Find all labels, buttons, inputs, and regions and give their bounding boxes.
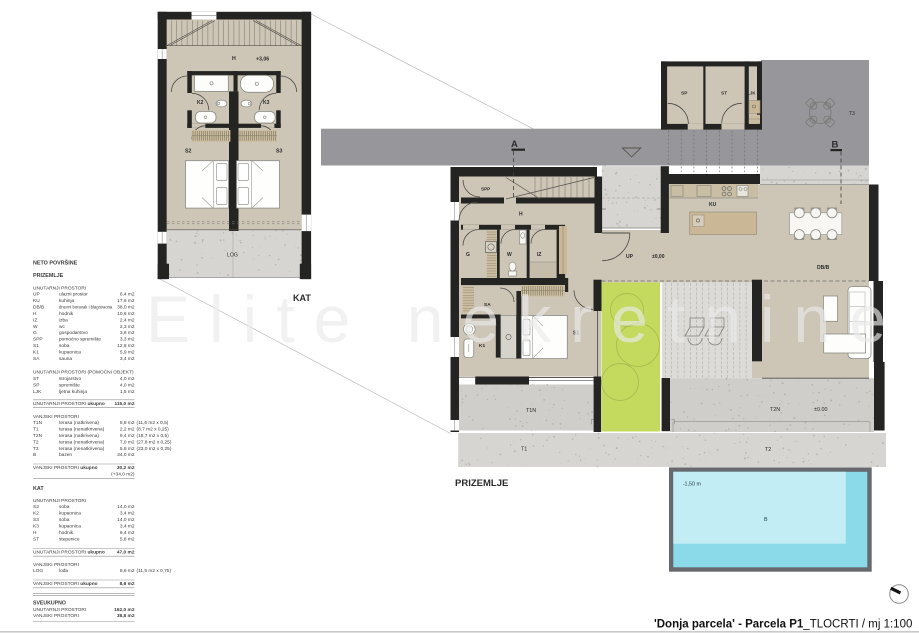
svg-text:T2: T2 <box>33 439 39 445</box>
svg-text:T1: T1 <box>521 447 527 453</box>
svg-text:UNUTARNJI PROSTORI: UNUTARNJI PROSTORI <box>33 607 86 613</box>
svg-text:ST: ST <box>33 376 39 382</box>
svg-text:2,2 m2: 2,2 m2 <box>120 427 135 433</box>
svg-text:(+34,0 m2): (+34,0 m2) <box>111 471 135 477</box>
svg-text:+3,06: +3,06 <box>256 57 269 63</box>
svg-text:SP: SP <box>33 382 39 388</box>
svg-text:38,8 m2: 38,8 m2 <box>117 613 135 619</box>
svg-text:T1N: T1N <box>33 420 43 426</box>
svg-text:terasa (nenatkrivena): terasa (nenatkrivena) <box>59 439 105 445</box>
svg-text:10,6 m2: 10,6 m2 <box>117 311 135 317</box>
svg-text:ST: ST <box>33 536 39 542</box>
svg-text:34,0 m2: 34,0 m2 <box>117 452 135 458</box>
svg-text:SVEUKUPNO: SVEUKUPNO <box>33 601 66 607</box>
svg-text:UNUTARNJI PROSTORI: UNUTARNJI PROSTORI <box>33 498 86 504</box>
svg-text:K2: K2 <box>197 100 204 106</box>
svg-text:UNUTARNJI PROSTORI ukupno: UNUTARNJI PROSTORI ukupno <box>33 549 105 555</box>
svg-text:VANJSKI PROSTORI: VANJSKI PROSTORI <box>33 414 79 420</box>
svg-text:162,0 m2: 162,0 m2 <box>114 607 135 613</box>
svg-text:T2: T2 <box>765 447 771 453</box>
svg-text:±0,00: ±0,00 <box>652 254 665 260</box>
svg-text:(27,8 m2 x 0,25): (27,8 m2 x 0,25) <box>137 439 172 445</box>
svg-text:S1: S1 <box>33 343 39 349</box>
svg-text:8,6 m2: 8,6 m2 <box>120 568 135 574</box>
svg-text:terasa (natkrivena): terasa (natkrivena) <box>59 420 99 426</box>
svg-text:115,0 m2: 115,0 m2 <box>114 401 134 407</box>
svg-text:±0.00: ±0.00 <box>814 407 827 413</box>
svg-text:3,4 m2: 3,4 m2 <box>120 511 135 517</box>
svg-text:Elite nekretnine: Elite nekretnine <box>146 282 905 356</box>
svg-text:SPP: SPP <box>481 187 490 192</box>
svg-text:kupaonica: kupaonica <box>59 511 81 517</box>
svg-text:9,4 m2: 9,4 m2 <box>120 433 135 439</box>
svg-text:DB/B: DB/B <box>817 265 830 271</box>
svg-text:30,2 m2: 30,2 m2 <box>117 465 135 471</box>
svg-text:IZ: IZ <box>33 317 37 323</box>
svg-text:W: W <box>507 252 512 258</box>
svg-text:UP: UP <box>626 254 634 260</box>
svg-text:H: H <box>519 212 523 218</box>
svg-text:PRIZEMLJE: PRIZEMLJE <box>33 273 64 279</box>
svg-text:ljetna kuhinja: ljetna kuhinja <box>59 389 87 395</box>
svg-text:S3: S3 <box>276 149 282 155</box>
svg-text:(18,7 m2 x 0,5): (18,7 m2 x 0,5) <box>137 433 170 439</box>
svg-text:soba: soba <box>59 504 70 510</box>
svg-text:5,8 m2: 5,8 m2 <box>120 446 135 452</box>
svg-text:W: W <box>33 324 38 330</box>
svg-text:LJK: LJK <box>33 389 42 395</box>
svg-text:LOG: LOG <box>227 253 238 259</box>
svg-text:T3: T3 <box>33 446 39 452</box>
svg-text:IZ: IZ <box>537 252 541 258</box>
svg-text:PRIZEMLJE: PRIZEMLJE <box>455 478 508 489</box>
svg-text:NETO POVRŠINE: NETO POVRŠINE <box>33 259 78 267</box>
svg-text:LJK: LJK <box>748 91 756 96</box>
svg-text:sauna: sauna <box>59 357 72 362</box>
svg-text:VANJSKI PROSTORI ukupno: VANJSKI PROSTORI ukupno <box>33 581 98 587</box>
svg-text:T3: T3 <box>849 111 855 117</box>
svg-text:(11,6 m2 x 0,5): (11,6 m2 x 0,5) <box>137 420 169 426</box>
svg-text:stepenice: stepenice <box>59 536 80 542</box>
svg-text:4,0 m2: 4,0 m2 <box>120 376 135 382</box>
svg-text:1,5 m2: 1,5 m2 <box>120 389 135 395</box>
svg-text:KU: KU <box>33 298 40 304</box>
svg-text:spremište: spremište <box>59 382 80 388</box>
svg-text:UNUTARNJI PROSTORI (POMOĆNI OB: UNUTARNJI PROSTORI (POMOĆNI OBJEKT) <box>33 369 134 376</box>
svg-text:K1: K1 <box>33 350 39 356</box>
svg-text:hodnik: hodnik <box>59 530 74 536</box>
svg-text:DB/B: DB/B <box>33 304 44 310</box>
svg-text:KAT: KAT <box>33 486 44 492</box>
svg-text:3,4 m2: 3,4 m2 <box>120 524 135 530</box>
svg-text:T2N: T2N <box>770 407 780 413</box>
svg-text:6,4 m2: 6,4 m2 <box>120 530 135 536</box>
svg-text:14,0 m2: 14,0 m2 <box>117 517 135 523</box>
svg-text:(8,7 m2 x 0,25): (8,7 m2 x 0,25) <box>137 427 170 433</box>
svg-text:soba: soba <box>59 517 70 523</box>
svg-text:T1N: T1N <box>526 408 536 414</box>
svg-text:G: G <box>466 252 470 258</box>
svg-text:5,8 m2: 5,8 m2 <box>120 420 135 426</box>
svg-text:kupaonica: kupaonica <box>59 524 81 530</box>
svg-text:H: H <box>232 56 236 62</box>
svg-text:KU: KU <box>709 202 717 208</box>
svg-text:12,8 m2: 12,8 m2 <box>117 343 135 349</box>
svg-text:terasa (nenatkrivena): terasa (nenatkrivena) <box>59 427 105 433</box>
svg-text:(23,0 m2 x 0,25): (23,0 m2 x 0,25) <box>137 446 172 452</box>
svg-text:S3: S3 <box>33 517 39 523</box>
svg-text:S2: S2 <box>185 149 191 155</box>
svg-text:SP: SP <box>681 91 688 97</box>
svg-text:soba: soba <box>59 343 70 349</box>
svg-text:(11,5 m2 x 0,75): (11,5 m2 x 0,75) <box>137 568 172 574</box>
svg-text:VANJSKI PROSTORI: VANJSKI PROSTORI <box>33 613 79 619</box>
svg-text:14,0 m2: 14,0 m2 <box>117 504 135 510</box>
svg-text:pomoćno spremište: pomoćno spremište <box>59 337 101 343</box>
svg-text:dnevni boravak i blagovaona: dnevni boravak i blagovaona <box>59 304 113 309</box>
svg-text:B: B <box>764 517 768 523</box>
svg-text:47,0 m2: 47,0 m2 <box>117 549 135 555</box>
svg-text:T2N: T2N <box>33 433 43 439</box>
svg-text:H: H <box>33 311 37 317</box>
svg-text:G: G <box>33 330 37 336</box>
svg-text:2,3 m2: 2,3 m2 <box>120 324 135 330</box>
svg-text:'Donja parcela' - Parcela P1_T: 'Donja parcela' - Parcela P1_TLOCRTI / m… <box>654 619 912 631</box>
svg-text:17,6 m2: 17,6 m2 <box>117 298 135 304</box>
svg-text:3,3 m2: 3,3 m2 <box>120 337 135 343</box>
svg-text:H: H <box>33 530 37 536</box>
svg-text:LOG: LOG <box>33 568 43 574</box>
svg-text:terasa (nenatkrivena): terasa (nenatkrivena) <box>59 446 105 452</box>
svg-text:strojarstvo: strojarstvo <box>59 376 81 382</box>
svg-text:3,4 m2: 3,4 m2 <box>120 356 135 362</box>
svg-text:VANJSKI PROSTORI ukupno: VANJSKI PROSTORI ukupno <box>33 465 98 471</box>
svg-text:B: B <box>832 140 839 151</box>
svg-text:B: B <box>33 452 36 458</box>
svg-text:3,6 m2: 3,6 m2 <box>120 330 135 336</box>
svg-text:6,4 m2: 6,4 m2 <box>120 292 135 298</box>
svg-text:bazen: bazen <box>59 452 72 458</box>
svg-text:7,0 m2: 7,0 m2 <box>120 439 135 445</box>
svg-text:-1,50 m: -1,50 m <box>683 482 702 488</box>
svg-text:SA: SA <box>33 356 40 362</box>
svg-text:kuhinja: kuhinja <box>59 298 75 304</box>
svg-text:38,0 m2: 38,0 m2 <box>117 304 135 310</box>
svg-text:gospodarstvo: gospodarstvo <box>59 330 88 336</box>
svg-text:SPP: SPP <box>33 337 43 343</box>
svg-text:UNUTARNJI PROSTORI ukupno: UNUTARNJI PROSTORI ukupno <box>33 401 105 407</box>
svg-text:wc: wc <box>59 325 65 330</box>
svg-text:kupaonica: kupaonica <box>59 350 81 356</box>
svg-text:VANJSKI PROSTORI: VANJSKI PROSTORI <box>33 562 79 568</box>
svg-text:izba: izba <box>59 317 68 323</box>
svg-text:lođa: lođa <box>59 568 68 574</box>
svg-text:K2: K2 <box>33 511 39 517</box>
svg-text:5,9 m2: 5,9 m2 <box>120 350 135 356</box>
svg-text:hodnik: hodnik <box>59 311 74 317</box>
svg-text:T1: T1 <box>33 427 39 433</box>
svg-text:terasa (natkrivena): terasa (natkrivena) <box>59 433 99 439</box>
svg-text:A: A <box>511 139 518 150</box>
svg-text:UP: UP <box>33 292 40 298</box>
svg-text:K3: K3 <box>263 100 270 106</box>
svg-text:S2: S2 <box>33 504 39 510</box>
svg-text:5,8 m2: 5,8 m2 <box>120 536 135 542</box>
svg-text:2,4 m2: 2,4 m2 <box>120 317 135 323</box>
svg-text:8,6 m2: 8,6 m2 <box>120 581 135 587</box>
svg-text:K3: K3 <box>33 524 39 530</box>
svg-text:UNUTARNJI PROSTORI: UNUTARNJI PROSTORI <box>33 286 86 292</box>
svg-text:4,0 m2: 4,0 m2 <box>120 382 135 388</box>
svg-text:ST: ST <box>721 91 727 97</box>
svg-text:ulazni prostor: ulazni prostor <box>59 292 88 298</box>
